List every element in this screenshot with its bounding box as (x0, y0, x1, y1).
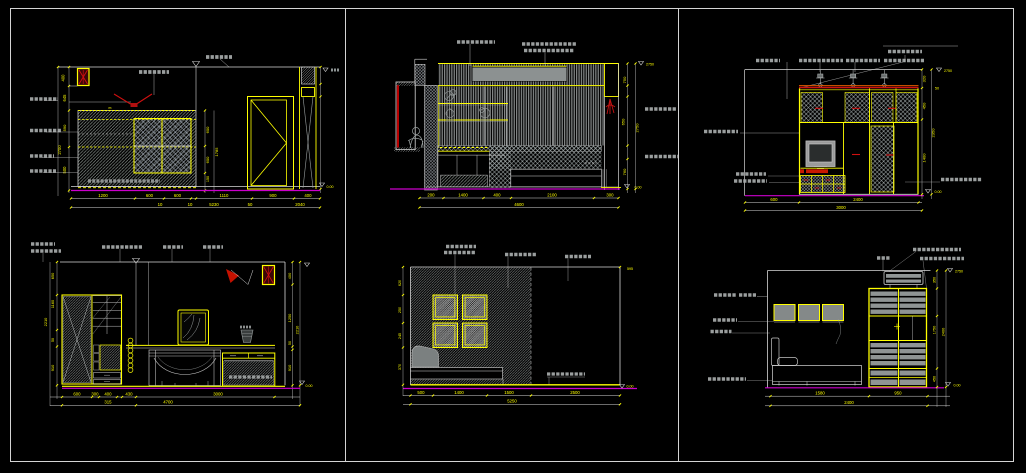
svg-text:2400: 2400 (853, 197, 863, 202)
svg-text:3000: 3000 (836, 205, 846, 210)
svg-text:0.00: 0.00 (935, 190, 942, 194)
svg-text:0.00: 0.00 (327, 185, 334, 189)
svg-text:650: 650 (50, 272, 55, 279)
svg-text:400: 400 (61, 74, 66, 82)
svg-text:0.00: 0.00 (627, 385, 634, 389)
svg-text:600: 600 (174, 193, 182, 198)
svg-text:1500: 1500 (504, 390, 514, 395)
svg-text:400: 400 (304, 193, 312, 198)
svg-text:1580: 1580 (815, 391, 825, 396)
svg-text:900: 900 (269, 193, 277, 198)
svg-text:5230: 5230 (209, 202, 219, 207)
svg-text:2500: 2500 (570, 390, 580, 395)
svg-text:10: 10 (158, 202, 163, 207)
svg-text:2750: 2750 (944, 69, 952, 73)
svg-text:2700: 2700 (57, 145, 62, 155)
svg-text:1750: 1750 (933, 326, 937, 334)
svg-text:350: 350 (933, 277, 937, 283)
svg-text:2400: 2400 (942, 328, 946, 336)
svg-text:760: 760 (622, 168, 627, 175)
svg-text:400: 400 (104, 391, 112, 396)
svg-text:1785: 1785 (214, 147, 219, 157)
svg-text:1200: 1200 (98, 193, 108, 198)
svg-text:450: 450 (922, 102, 927, 109)
svg-text:3000: 3000 (213, 391, 223, 396)
svg-text:2750: 2750 (635, 123, 640, 133)
svg-text:315: 315 (104, 400, 112, 405)
svg-text:5250: 5250 (507, 399, 517, 404)
svg-text:2210: 2210 (295, 325, 300, 334)
svg-text:2210: 2210 (43, 317, 48, 326)
svg-text:50: 50 (935, 87, 939, 91)
svg-text:1110: 1110 (220, 193, 230, 198)
svg-text:910: 910 (287, 364, 292, 371)
svg-text:200: 200 (427, 192, 435, 197)
svg-text:590: 590 (62, 124, 67, 131)
svg-text:645: 645 (62, 94, 67, 102)
svg-text:595: 595 (627, 267, 633, 271)
svg-text:0.00: 0.00 (306, 384, 313, 388)
svg-text:950: 950 (894, 391, 902, 396)
svg-text:10: 10 (188, 202, 193, 207)
svg-text:500: 500 (417, 390, 425, 395)
svg-text:650: 650 (621, 118, 626, 125)
svg-text:1160: 1160 (50, 299, 55, 308)
svg-text:450: 450 (933, 376, 937, 382)
svg-text:400: 400 (493, 192, 501, 197)
svg-text:50: 50 (51, 338, 55, 342)
svg-text:m: m (109, 106, 112, 110)
svg-text:600: 600 (73, 391, 81, 396)
svg-text:1400: 1400 (454, 390, 464, 395)
svg-text:2100: 2100 (547, 192, 557, 197)
svg-text:1250: 1250 (287, 313, 292, 322)
svg-text:4600: 4600 (514, 202, 524, 207)
svg-text:2350: 2350 (931, 128, 936, 138)
svg-text:0.00: 0.00 (954, 384, 961, 388)
svg-text:300: 300 (606, 192, 614, 197)
svg-text:2040: 2040 (295, 202, 305, 207)
svg-text:4700: 4700 (163, 400, 173, 405)
svg-text:600: 600 (205, 156, 210, 163)
svg-text:1400: 1400 (922, 153, 927, 163)
svg-text:50: 50 (288, 341, 292, 345)
svg-text:2400: 2400 (844, 400, 854, 405)
svg-text:2750: 2750 (646, 63, 654, 67)
svg-text:600: 600 (205, 126, 210, 133)
svg-text:620: 620 (398, 280, 402, 286)
svg-text:250: 250 (398, 307, 402, 313)
svg-text:750: 750 (622, 76, 627, 83)
svg-text:2750: 2750 (955, 270, 963, 274)
svg-text:600: 600 (770, 197, 778, 202)
svg-text:300: 300 (91, 391, 99, 396)
svg-text:430: 430 (125, 391, 133, 396)
svg-text:1400: 1400 (458, 192, 468, 197)
svg-text:320: 320 (922, 75, 927, 82)
svg-text:910: 910 (50, 364, 55, 371)
svg-text:370: 370 (398, 364, 402, 370)
svg-text:600: 600 (146, 193, 154, 198)
svg-text:245: 245 (398, 333, 402, 339)
svg-text:50: 50 (248, 202, 253, 207)
svg-text:150: 150 (206, 176, 210, 182)
svg-text:400: 400 (287, 272, 292, 279)
